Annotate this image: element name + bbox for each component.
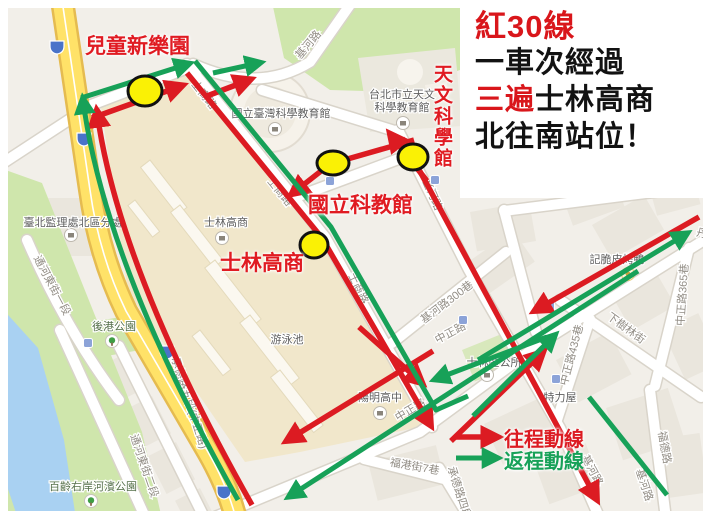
stop-label-ertong: 兒童新樂園: [85, 30, 190, 60]
stop-label-tianwen: 天文科學館: [428, 64, 455, 169]
museum-icon: [269, 123, 282, 136]
title-line-2: 一車次經過: [475, 45, 703, 82]
stop-marker-tianwen: [398, 144, 428, 170]
stop-marker-kejiao: [317, 151, 349, 175]
title-box: 紅30線 一車次經過 三遍士林高商 北往南站位！: [460, 4, 703, 198]
government-icon: [65, 229, 78, 242]
tree-icon: [85, 495, 98, 508]
stop-label-kejiao: 國立科教館: [308, 189, 413, 219]
title-line-3: 三遍士林高商: [475, 82, 703, 119]
title-line-3-red: 三遍: [475, 84, 535, 116]
stop-marker-shilin: [300, 232, 328, 258]
museum-icon: [397, 117, 410, 130]
poi-label: 後港公園: [92, 319, 136, 333]
stop-marker-ertong: [128, 76, 162, 106]
transit-icon: [84, 339, 93, 348]
transit-icon: [459, 316, 468, 325]
transit-icon: [431, 176, 440, 185]
school-icon: [216, 232, 229, 245]
poi-label: 國立臺灣科學教育館: [232, 106, 331, 120]
poi-label: 百齡右岸河濱公園: [49, 479, 137, 493]
poi-label: 士林高商: [204, 215, 248, 229]
title-line-3-black: 士林高商: [535, 84, 655, 116]
school-icon: [374, 407, 387, 420]
poi-label: 台北市立天文: [369, 87, 435, 101]
poi-label: 特力屋: [544, 390, 577, 404]
stop-label-shilin: 士林高商: [220, 247, 304, 277]
legend-return-label: 返程動線: [504, 445, 584, 474]
transit-icon: [326, 177, 335, 186]
title-line-4: 北往南站位！: [475, 119, 703, 156]
tree-icon: [106, 335, 119, 348]
title-line-1: 紅30線: [475, 8, 703, 45]
route-map-slide: 基河路 基河路 基河路 基河路 士商路 士商路 士商路 中正路 中正路 基河路3…: [0, 0, 703, 519]
store-icon: [552, 375, 561, 384]
poi-label: 科學教育館: [375, 100, 430, 114]
poi-label: 游泳池: [271, 332, 304, 346]
highway-shield-icon: [50, 41, 64, 54]
